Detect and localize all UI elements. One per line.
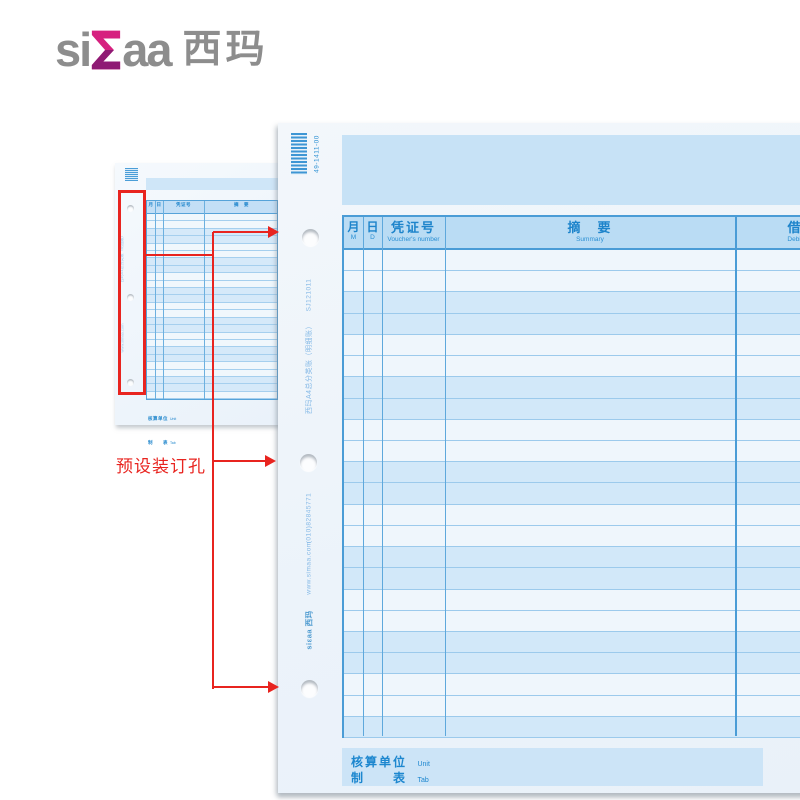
- table-row: [344, 568, 800, 589]
- mini-col-summary: 摘 要: [204, 203, 279, 208]
- mini-unit-label: 核算单位: [148, 416, 168, 421]
- logo-text-si: si: [55, 26, 90, 73]
- side-brand-logo: siεaa 西玛: [304, 610, 315, 649]
- table-row: [344, 632, 800, 653]
- mini-tab-label-en: Tab: [170, 441, 176, 445]
- col-header-debit: 借 Debit: [735, 217, 800, 250]
- table-row: [344, 356, 800, 377]
- table-row: [344, 526, 800, 547]
- col-summary-en: Summary: [445, 236, 735, 243]
- table-row: [344, 462, 800, 483]
- col-summary-cn: 摘 要: [445, 220, 735, 236]
- logo-sigma-icon: [91, 30, 121, 70]
- unit-label-en: Unit: [417, 761, 429, 768]
- col-header-summary: 摘 要 Summary: [445, 217, 735, 250]
- form-footer-band: 核算单位 Unit 制 表 Tab: [342, 748, 763, 786]
- binding-hole-top: [302, 229, 319, 246]
- table-row: [344, 377, 800, 398]
- col-day-en: D: [363, 234, 382, 241]
- table-row: [344, 292, 800, 313]
- ledger-table: 月 M 日 D 凭证号 Voucher's number 摘 要 Summary…: [342, 215, 800, 738]
- barcode-icon: [291, 133, 307, 175]
- table-row: [344, 547, 800, 568]
- table-row: [344, 505, 800, 526]
- table-row: [344, 335, 800, 356]
- ledger-form: 49-1411-00 SJ121011 西玛A4总分类账（明细账） (010)8…: [278, 123, 800, 793]
- col-voucher-en: Voucher's number: [382, 236, 445, 243]
- mini-tab-label: 制 表: [148, 440, 168, 445]
- mini-col-month: 月: [147, 203, 155, 208]
- col-debit-en: Debit: [735, 236, 800, 243]
- arrow-head-top: [268, 226, 279, 238]
- logo-text-aa: aa: [122, 26, 170, 73]
- ledger-table-body: [344, 250, 800, 738]
- grid-line: [363, 217, 364, 736]
- table-row: [344, 717, 800, 738]
- table-row: [344, 399, 800, 420]
- mini-col-voucher: 凭证号: [163, 203, 204, 208]
- form-top-band: [342, 135, 800, 205]
- side-phone: (010)82845771: [306, 493, 313, 544]
- col-header-day: 日 D: [363, 217, 382, 250]
- col-header-month: 月 M: [344, 217, 363, 250]
- col-month-en: M: [344, 234, 363, 241]
- mini-footer: 核算单位Unit 制 表Tab: [148, 404, 176, 452]
- mini-grid-line: [163, 201, 164, 399]
- mini-barcode-icon: [125, 168, 138, 181]
- col-debit-cn: 借: [735, 220, 800, 236]
- mini-top-band: [146, 178, 280, 190]
- binding-highlight-box: [118, 190, 146, 395]
- callout-arrow-middle: [213, 460, 266, 462]
- callout-arrow-bottom: [213, 686, 269, 688]
- table-row: [344, 590, 800, 611]
- brand-logo: si aa 西玛: [55, 26, 269, 73]
- tab-label: 制 表: [351, 771, 407, 785]
- table-row: [344, 314, 800, 335]
- col-header-voucher: 凭证号 Voucher's number: [382, 217, 445, 250]
- grid-line: [382, 217, 383, 736]
- barcode-number: 49-1411-00: [314, 135, 321, 173]
- callout-arrow-top: [213, 231, 269, 233]
- table-row: [344, 653, 800, 674]
- table-row: [344, 611, 800, 632]
- table-row: [344, 674, 800, 695]
- table-row: [344, 441, 800, 462]
- table-row: [147, 214, 277, 221]
- table-row: [344, 420, 800, 441]
- binding-hole-bottom: [301, 680, 318, 697]
- tab-label-en: Tab: [417, 777, 428, 784]
- table-row: [344, 696, 800, 717]
- table-row: [147, 221, 277, 228]
- mini-grid-line: [204, 201, 205, 399]
- ledger-table-header: 月 M 日 D 凭证号 Voucher's number 摘 要 Summary…: [344, 217, 800, 250]
- binding-hole-middle: [300, 454, 317, 471]
- mini-table-header: 月 日 凭证号 摘 要: [147, 201, 277, 214]
- product-image: si aa 西玛 西玛A4总分类账（明细账） www.simaa.com 月 日…: [0, 0, 800, 800]
- unit-label: 核算单位: [351, 755, 407, 769]
- binding-holes-label: 预设装订孔: [116, 452, 206, 477]
- callout-connector-line: [146, 254, 213, 256]
- logo-text-cn: 西玛: [182, 30, 268, 69]
- grid-line: [445, 217, 446, 736]
- arrow-head-bottom: [268, 681, 279, 693]
- table-row: [344, 250, 800, 271]
- side-product-code: SJ121011: [306, 279, 313, 312]
- table-row: [344, 271, 800, 292]
- col-day-cn: 日: [363, 220, 382, 234]
- col-month-cn: 月: [344, 220, 363, 234]
- mini-col-day: 日: [155, 203, 163, 208]
- table-row: [344, 483, 800, 504]
- side-product-name: 西玛A4总分类账（明细账）: [304, 322, 314, 414]
- side-website: www.simaa.com: [306, 541, 313, 594]
- mini-unit-label-en: Unit: [170, 417, 176, 421]
- grid-line: [735, 217, 737, 736]
- arrow-head-middle: [265, 455, 276, 467]
- mini-grid-line: [155, 201, 156, 399]
- col-voucher-cn: 凭证号: [382, 220, 445, 236]
